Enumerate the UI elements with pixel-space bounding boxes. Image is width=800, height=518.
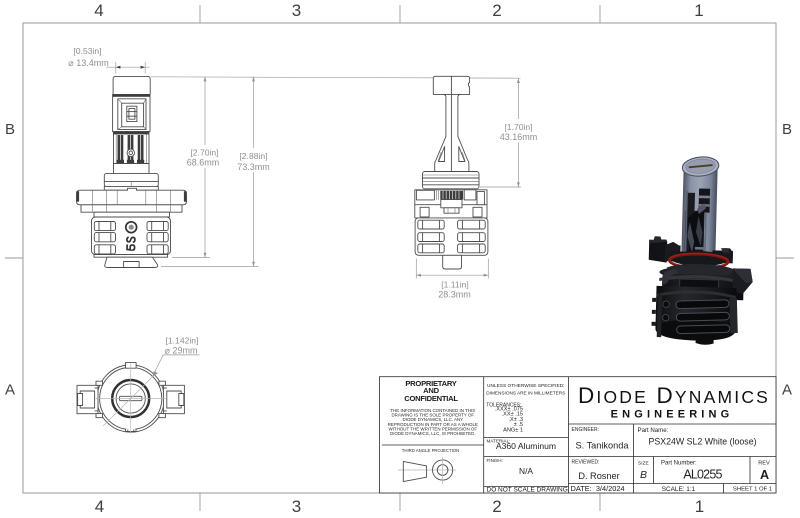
svg-text:SHEET 1 OF 1: SHEET 1 OF 1 xyxy=(733,487,772,493)
svg-text:B: B xyxy=(640,469,647,481)
svg-text:B: B xyxy=(5,121,15,138)
svg-text:3: 3 xyxy=(292,497,301,516)
svg-text:B: B xyxy=(782,121,792,138)
svg-text:SIZE: SIZE xyxy=(638,461,649,467)
svg-text:28.3mm: 28.3mm xyxy=(438,290,471,300)
svg-text:4: 4 xyxy=(94,1,103,20)
svg-text:A: A xyxy=(5,381,15,398)
svg-text:⌀ 29mm: ⌀ 29mm xyxy=(165,346,198,356)
svg-text:DIMENSIONS ARE IN MILLIMETERS: DIMENSIONS ARE IN MILLIMETERS xyxy=(486,391,565,396)
svg-text:[2.70in]: [2.70in] xyxy=(190,147,218,157)
svg-text:⌀ 13.4mm: ⌀ 13.4mm xyxy=(68,58,108,68)
svg-text:[2.88in]: [2.88in] xyxy=(239,151,267,161)
svg-text:3: 3 xyxy=(292,1,301,20)
svg-text:SCALE: 1:1: SCALE: 1:1 xyxy=(662,486,696,493)
svg-text:A360 Aluminum: A360 Aluminum xyxy=(496,441,556,451)
svg-text:[1.70in]: [1.70in] xyxy=(504,122,532,132)
svg-text:CONFIDENTIAL: CONFIDENTIAL xyxy=(404,394,458,403)
svg-text:[1.11in]: [1.11in] xyxy=(441,279,469,289)
svg-text:ENGINEERING: ENGINEERING xyxy=(611,408,734,420)
svg-text:A: A xyxy=(782,381,792,398)
svg-text:PSX24W SL2 White (loose): PSX24W SL2 White (loose) xyxy=(648,437,756,447)
svg-text:Part Number:: Part Number: xyxy=(661,461,697,467)
svg-text:A: A xyxy=(760,468,769,482)
svg-text:2: 2 xyxy=(492,497,501,516)
svg-text:REVIEWED:: REVIEWED: xyxy=(572,460,600,466)
svg-text:[1.142in]: [1.142in] xyxy=(166,336,199,346)
svg-text:AL0255: AL0255 xyxy=(683,468,722,482)
svg-text:S. Tanikonda: S. Tanikonda xyxy=(576,441,630,451)
svg-text:DO NOT SCALE DRAWING: DO NOT SCALE DRAWING xyxy=(487,486,568,493)
svg-text:43.16mm: 43.16mm xyxy=(500,132,538,142)
svg-text:DIODE DYNAMICS: DIODE DYNAMICS xyxy=(578,383,770,408)
svg-text:1: 1 xyxy=(695,497,704,516)
svg-text:THIRD ANGLE PROJECTION: THIRD ANGLE PROJECTION xyxy=(402,448,460,453)
svg-text:N/A: N/A xyxy=(519,466,533,476)
svg-text:2: 2 xyxy=(492,1,501,20)
svg-text:ENGINEER:: ENGINEER: xyxy=(572,427,600,433)
svg-text:68.6mm: 68.6mm xyxy=(187,157,220,167)
svg-text:DIODE DYNAMICS, LLC, IS PROHIB: DIODE DYNAMICS, LLC, IS PROHIBITED. xyxy=(390,431,476,436)
svg-text:Part Name:: Part Name: xyxy=(638,427,669,434)
svg-text:DATE: 3/4/2024: DATE: 3/4/2024 xyxy=(571,484,625,493)
svg-text:UNLESS OTHERWISE SPECIFIED:: UNLESS OTHERWISE SPECIFIED: xyxy=(487,383,564,389)
svg-text:REV: REV xyxy=(758,460,770,466)
svg-text:FINISH:: FINISH: xyxy=(487,458,503,463)
svg-text:D. Rosner: D. Rosner xyxy=(578,471,619,481)
svg-text:4: 4 xyxy=(95,497,104,516)
svg-text:1: 1 xyxy=(694,1,703,20)
svg-text:[0.53in]: [0.53in] xyxy=(73,46,101,56)
svg-text:ANG± 1: ANG± 1 xyxy=(503,427,523,433)
svg-text:73.3mm: 73.3mm xyxy=(237,162,270,172)
